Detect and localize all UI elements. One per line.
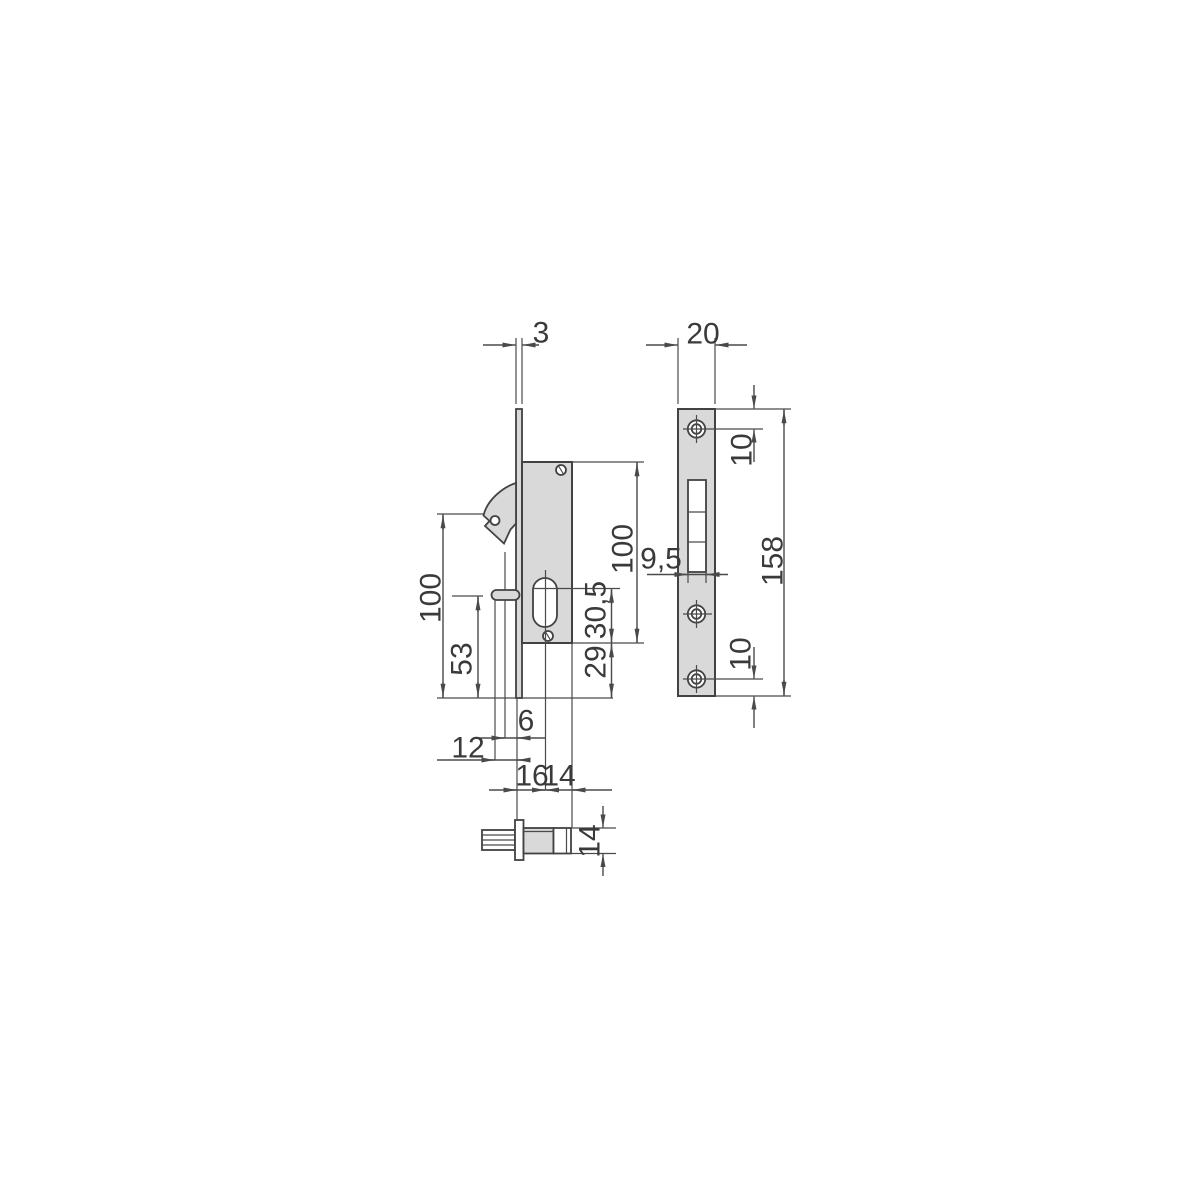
dim-label-bottom-margin: 29: [580, 645, 613, 678]
dim-label-strike-width: 20: [686, 318, 719, 351]
side-view-lock: [484, 409, 573, 698]
dim-label-hole-top-offset: 10: [726, 433, 759, 466]
extension-lines: [437, 338, 791, 854]
dim-label-follower-height: 14: [574, 824, 607, 857]
technical-drawing: 3 20 10 158 9,5 10 100 53 100 30,5 29 6 …: [0, 0, 1200, 1200]
hook-bolt: [484, 483, 517, 544]
dimension-labels: 3 20 10 158 9,5 10 100 53 100 30,5 29 6 …: [415, 317, 790, 858]
hook-pivot-hole: [491, 516, 500, 525]
dim-label-pin-height: 53: [446, 642, 479, 675]
strike-slot: [688, 480, 706, 572]
dim-label-cylinder-to-back: 14: [542, 760, 575, 793]
dim-label-strike-height: 158: [757, 536, 790, 586]
follower-body-rear: [554, 828, 572, 854]
dim-label-pin-protrusion: 12: [451, 732, 484, 765]
detail-view-follower: [482, 820, 571, 860]
dim-label-body-height: 100: [607, 524, 640, 574]
locking-pin: [492, 590, 520, 600]
follower-flange: [515, 820, 524, 860]
dim-label-faceplate-thickness: 3: [533, 317, 550, 350]
dim-label-cylinder-to-bottom: 30,5: [580, 581, 613, 639]
technical-drawing-page: 3 20 10 158 9,5 10 100 53 100 30,5 29 6 …: [0, 0, 1200, 1200]
dim-label-hook-protrusion: 6: [518, 705, 535, 738]
dim-label-hook-pivot-height: 100: [415, 573, 448, 623]
dim-label-hole-bottom-offset: 10: [725, 637, 758, 670]
dim-label-slot-width: 9,5: [640, 543, 682, 576]
